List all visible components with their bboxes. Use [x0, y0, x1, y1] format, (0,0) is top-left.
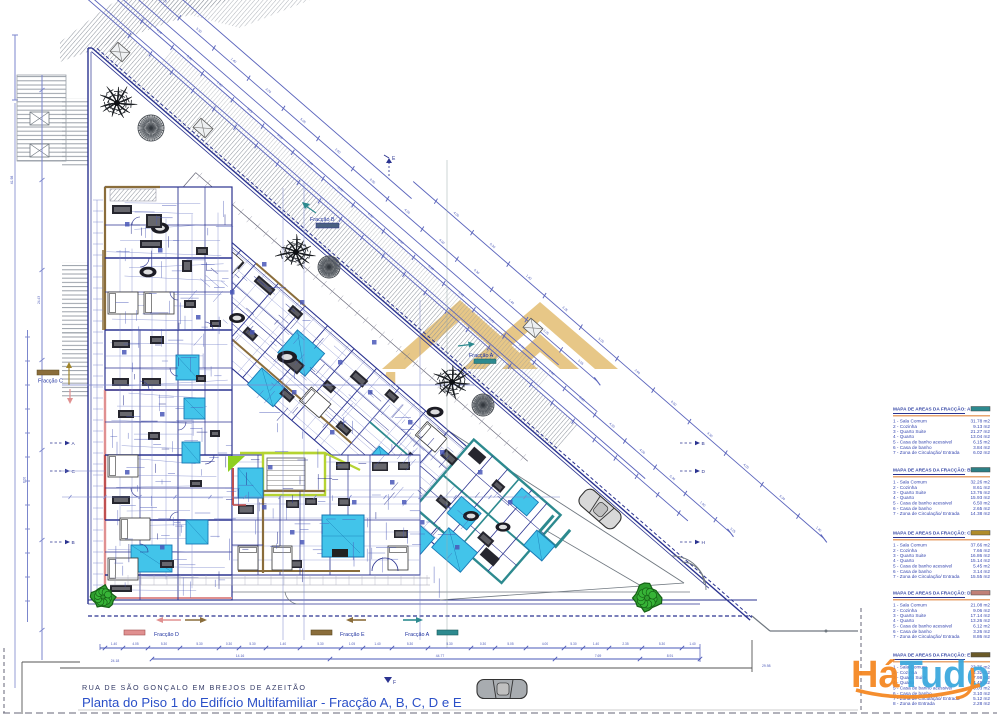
svg-text:Fracção D: Fracção D	[154, 632, 179, 638]
svg-text:8 - Zona de Entrada: 8 - Zona de Entrada	[893, 701, 935, 706]
svg-text:4 - Quarto: 4 - Quarto	[893, 558, 914, 563]
svg-text:5.30: 5.30	[161, 642, 167, 646]
svg-text:5.05: 5.05	[507, 642, 513, 646]
svg-text:15.55 m2: 15.55 m2	[970, 574, 990, 579]
svg-text:Fracção B: Fracção B	[310, 217, 335, 223]
svg-text:2.35: 2.35	[622, 642, 628, 646]
svg-text:32.26 m2: 32.26 m2	[970, 480, 990, 485]
svg-text:31.78 m2: 31.78 m2	[970, 419, 990, 424]
svg-text:1 - Sala Comum: 1 - Sala Comum	[893, 543, 927, 548]
svg-text:4 - Quarto: 4 - Quarto	[893, 434, 914, 439]
svg-text:Planta do Piso 1 do Edifício M: Planta do Piso 1 do Edifício Multifamili…	[82, 695, 462, 710]
svg-text:1.40: 1.40	[689, 642, 695, 646]
svg-text:8.00: 8.00	[23, 477, 27, 483]
svg-text:41.98: 41.98	[10, 176, 14, 185]
svg-text:Fracção A: Fracção A	[405, 632, 430, 638]
svg-text:1.40: 1.40	[593, 642, 599, 646]
svg-text:5 - Casa de banho acessivel: 5 - Casa de banho acessivel	[893, 501, 952, 506]
svg-text:0.30: 0.30	[226, 642, 232, 646]
svg-text:8.86 m2: 8.86 m2	[973, 634, 990, 639]
svg-text:5.30: 5.30	[570, 642, 576, 646]
svg-text:1.40: 1.40	[374, 642, 380, 646]
svg-text:4.05: 4.05	[132, 642, 138, 646]
svg-text:8.91: 8.91	[667, 654, 674, 658]
svg-text:A: A	[72, 441, 76, 447]
svg-text:5.30: 5.30	[446, 642, 452, 646]
svg-text:4 - Quarto: 4 - Quarto	[893, 618, 914, 623]
svg-text:7 - Zona de Circulação/ Entrad: 7 - Zona de Circulação/ Entrada	[893, 511, 960, 516]
svg-text:5 - Casa de banho acessivel: 5 - Casa de banho acessivel	[893, 440, 952, 445]
svg-text:21.08 m2: 21.08 m2	[970, 603, 990, 608]
svg-text:1 - Sala Comum: 1 - Sala Comum	[893, 480, 927, 485]
svg-text:E: E	[392, 156, 396, 162]
svg-text:1 - Sala Comum: 1 - Sala Comum	[893, 603, 927, 608]
svg-text:5 - Casa de banho acessivel: 5 - Casa de banho acessivel	[893, 564, 952, 569]
svg-text:1.40: 1.40	[280, 642, 286, 646]
svg-text:13.04 m2: 13.04 m2	[970, 434, 990, 439]
svg-text:1.05: 1.05	[349, 642, 355, 646]
svg-text:6.50 m2: 6.50 m2	[973, 501, 990, 506]
svg-text:44.77: 44.77	[436, 654, 445, 658]
svg-text:Fracção E: Fracção E	[340, 632, 365, 638]
svg-text:5.30: 5.30	[196, 642, 202, 646]
svg-text:5.30: 5.30	[317, 642, 323, 646]
svg-text:MAPA DE AREAS DA FRACÇÃO: A: MAPA DE AREAS DA FRACÇÃO: A	[893, 406, 971, 412]
svg-text:H: H	[702, 540, 706, 546]
svg-text:7.69: 7.69	[595, 654, 602, 658]
svg-text:C: C	[72, 469, 76, 475]
svg-text:2.28 m2: 2.28 m2	[973, 701, 990, 706]
svg-text:MAPA DE AREAS DA FRACÇÃO: D: MAPA DE AREAS DA FRACÇÃO: D	[893, 590, 971, 596]
svg-text:24.18: 24.18	[111, 659, 120, 663]
svg-text:1.40: 1.40	[111, 642, 117, 646]
svg-text:MAPA DE AREAS DA FRACÇÃO: B: MAPA DE AREAS DA FRACÇÃO: B	[893, 467, 971, 473]
svg-text:Fracção A: Fracção A	[469, 353, 494, 359]
svg-text:MAPA DE AREAS DA FRACÇÃO: C: MAPA DE AREAS DA FRACÇÃO: C	[893, 530, 971, 536]
svg-text:Fracção C: Fracção C	[38, 379, 63, 385]
svg-text:37.66 m2: 37.66 m2	[970, 543, 990, 548]
svg-text:24.43: 24.43	[37, 296, 41, 304]
svg-text:7 - Zona de Circulação/ Entrad: 7 - Zona de Circulação/ Entrada	[893, 634, 960, 639]
svg-text:0.30: 0.30	[480, 642, 486, 646]
svg-text:5.30: 5.30	[407, 642, 413, 646]
svg-text:7 - Zona de Circulação/ Entrad: 7 - Zona de Circulação/ Entrada	[893, 574, 960, 579]
svg-text:F: F	[393, 680, 396, 686]
svg-text:5.30: 5.30	[249, 642, 255, 646]
svg-text:5.45 m2: 5.45 m2	[973, 564, 990, 569]
svg-text:4.00: 4.00	[542, 642, 548, 646]
svg-text:6.12 m2: 6.12 m2	[973, 624, 990, 629]
svg-text:B: B	[702, 441, 705, 447]
svg-text:29.98: 29.98	[762, 664, 771, 668]
svg-text:6.02 m2: 6.02 m2	[973, 450, 990, 455]
svg-text:14.38 m2: 14.38 m2	[970, 511, 990, 516]
svg-text:14.16: 14.16	[236, 654, 245, 658]
svg-text:5 - Casa de banho acessivel: 5 - Casa de banho acessivel	[893, 624, 952, 629]
svg-text:7 - Zona de Circulação/ Entrad: 7 - Zona de Circulação/ Entrada	[893, 450, 960, 455]
svg-text:1 - Sala Comum: 1 - Sala Comum	[893, 419, 927, 424]
svg-text:15.93 m2: 15.93 m2	[970, 495, 990, 500]
svg-text:15.14 m2: 15.14 m2	[970, 558, 990, 563]
svg-text:13.26 m2: 13.26 m2	[970, 618, 990, 623]
svg-text:RUA DE SÃO GONÇALO EM BREJOS D: RUA DE SÃO GONÇALO EM BREJOS DE AZEITÃO	[82, 683, 306, 692]
svg-text:5.30: 5.30	[659, 642, 665, 646]
svg-text:D: D	[702, 469, 706, 475]
svg-text:B: B	[72, 540, 75, 546]
svg-text:6.15 m2: 6.15 m2	[973, 440, 990, 445]
svg-text:4 - Quarto: 4 - Quarto	[893, 495, 914, 500]
